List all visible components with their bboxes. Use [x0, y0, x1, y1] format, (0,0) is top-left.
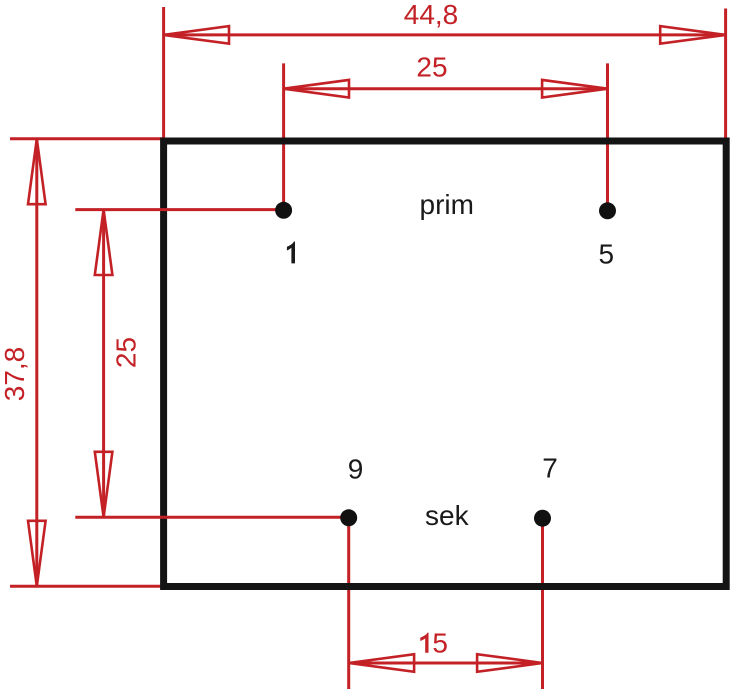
svg-text:7: 7 [542, 453, 558, 484]
svg-text:37,8: 37,8 [0, 347, 30, 402]
svg-text:44,8: 44,8 [404, 0, 459, 30]
svg-text:5: 5 [432, 628, 448, 659]
svg-text:5: 5 [599, 238, 615, 269]
svg-text:25: 25 [416, 51, 447, 82]
svg-text:9: 9 [348, 454, 364, 485]
svg-text:25: 25 [111, 337, 142, 368]
svg-text:prim: prim [420, 189, 474, 220]
svg-text:sek: sek [425, 500, 470, 531]
